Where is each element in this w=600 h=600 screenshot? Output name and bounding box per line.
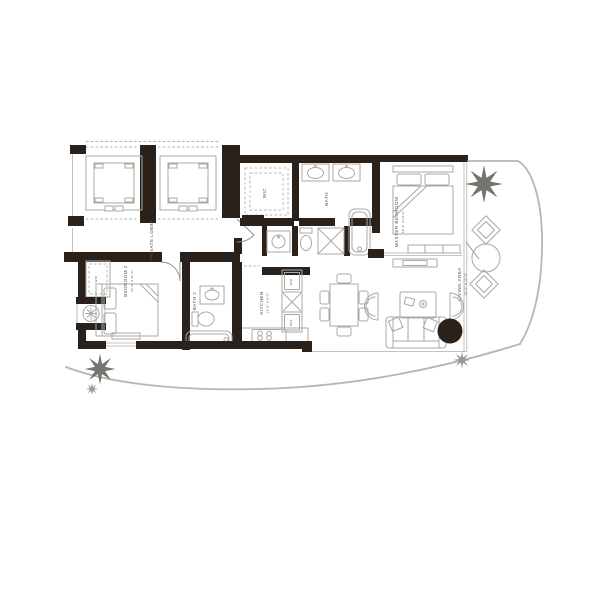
master-bedroom-dimensions: 12'-4" X 13'-0" — [401, 211, 405, 234]
bathtub-icon — [349, 209, 370, 255]
bedroom-2-closet-label: WIC — [94, 275, 98, 282]
private-lobby-label: PRIVATE LOBBY — [149, 219, 154, 260]
vanity-sink-icon — [200, 286, 224, 304]
wall — [234, 238, 242, 254]
elevator-1-icon — [86, 156, 142, 211]
master-bath-label: BATH — [324, 192, 329, 206]
wic-label: WIC — [262, 188, 267, 199]
terrace — [66, 161, 542, 395]
elevator-2-icon — [160, 156, 216, 211]
sofa-icon — [386, 317, 446, 348]
wall — [302, 341, 312, 352]
wall-unit-top — [240, 155, 376, 163]
glass-wall-line — [464, 162, 467, 352]
floor-plan-page: PRIVATE LOBBY WIC — [0, 0, 600, 600]
south-wall — [78, 341, 312, 352]
bath-2-label: BATH 2 — [192, 292, 197, 310]
dining-chair-icon — [337, 327, 351, 336]
washer-dryer-label: W/D — [289, 278, 293, 285]
dining-chair-icon — [320, 291, 329, 304]
window-line — [106, 343, 136, 346]
living-area-dimensions: 20'-0" X 12'-6" — [464, 273, 468, 296]
dining-area — [320, 274, 368, 336]
bedroom-2-dimensions: 12'-0" X 11'-6" — [130, 270, 134, 292]
bedroom-2-door-icon — [161, 262, 180, 281]
bedroom-2-closet: WIC — [86, 261, 110, 297]
wall — [262, 267, 310, 275]
wall — [232, 262, 242, 348]
bedroom-2-label: BEDROOM 2 — [123, 265, 128, 297]
wall — [372, 155, 380, 233]
terrace-chair-icon — [472, 216, 500, 244]
dresser-icon — [408, 245, 460, 253]
terrace-table-icon — [472, 244, 500, 272]
wall — [78, 252, 86, 300]
tv-console-icon — [393, 259, 437, 267]
kitchen-label: KITCHEN — [259, 291, 264, 314]
wall — [350, 218, 372, 226]
refrigerator-label: REF — [289, 319, 293, 326]
floor-plan-drawing: PRIVATE LOBBY WIC — [0, 0, 600, 600]
elevator-shafts — [68, 142, 240, 227]
wall — [70, 145, 86, 154]
master-bedroom-label: MASTER BEDROOM — [394, 197, 399, 247]
structural-column — [438, 319, 463, 344]
kitchen-dimensions: 12'-6" X 9'-0" — [266, 293, 270, 314]
wall — [262, 226, 267, 256]
plant-icon — [86, 383, 98, 395]
master-bath: BATH — [242, 155, 380, 256]
vanity-sink-icon — [302, 164, 329, 181]
wall — [292, 226, 298, 256]
terrace-chair-icon — [470, 270, 498, 298]
vanity-sink-icon — [333, 164, 360, 181]
wall — [240, 341, 304, 349]
dining-table-icon — [330, 284, 358, 326]
kitchen: W/D REF KITCHEN 12'-6" X 9'-0" — [232, 262, 310, 348]
wall — [299, 218, 335, 226]
wall — [78, 341, 106, 349]
armchair-icon — [365, 293, 379, 320]
terrace-railing-bottom — [66, 344, 520, 389]
wall — [376, 155, 468, 162]
shower-icon — [318, 228, 344, 254]
living-area-label: LIVING AREA — [457, 267, 462, 301]
bath-2: BATH 2 — [186, 286, 232, 348]
dining-chair-icon — [337, 274, 351, 283]
kitchen-island-icon: W/D REF — [282, 270, 302, 332]
wall-elevator-pier — [222, 145, 240, 218]
toilet-icon — [300, 228, 312, 251]
sink-icon — [283, 293, 301, 311]
living-area: LIVING AREA 20'-0" X 12'-6" — [312, 259, 468, 352]
coffee-table-icon — [400, 292, 436, 318]
plant-icon — [85, 354, 116, 385]
dining-chair-icon — [320, 308, 329, 321]
wall — [292, 163, 299, 221]
plant-icon — [454, 352, 471, 369]
bedroom-2: WIC BEDROOM 2 12'-0" X 11'-6" — [76, 252, 190, 350]
toilet-icon — [192, 312, 214, 326]
wall — [242, 215, 264, 221]
wall — [136, 341, 240, 349]
wall — [68, 216, 84, 226]
utility-sink-icon — [267, 231, 290, 252]
plant-icon — [465, 165, 503, 203]
wall — [368, 249, 384, 258]
private-lobby: PRIVATE LOBBY — [64, 219, 254, 262]
